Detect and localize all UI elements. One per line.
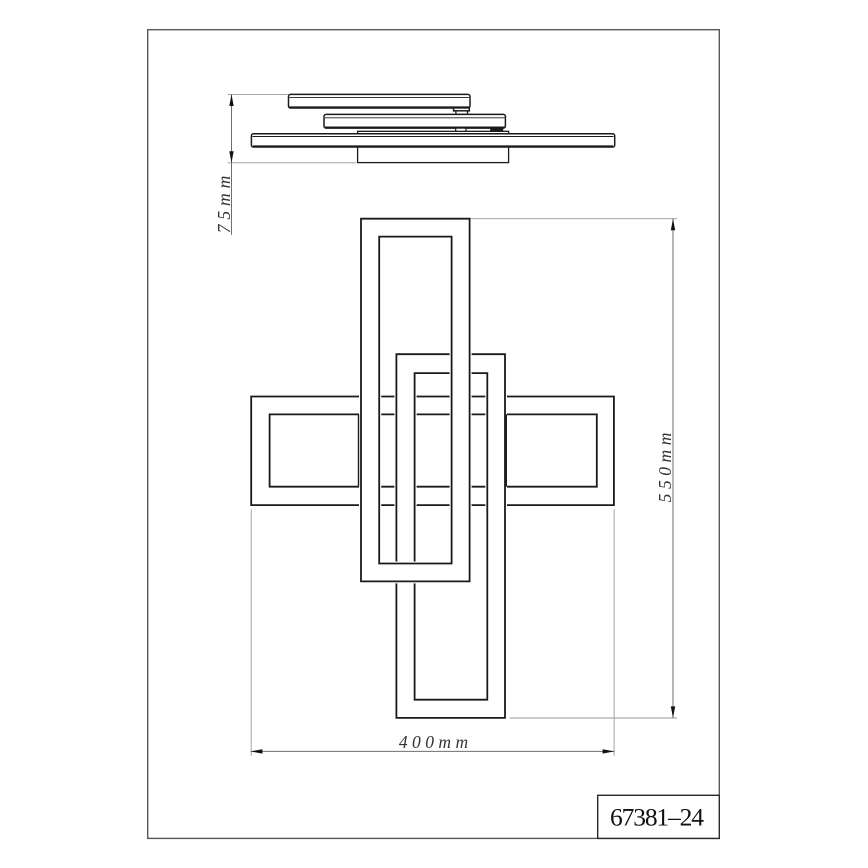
svg-text:75mm: 75mm xyxy=(214,176,234,234)
svg-text:67381–24: 67381–24 xyxy=(610,803,704,832)
